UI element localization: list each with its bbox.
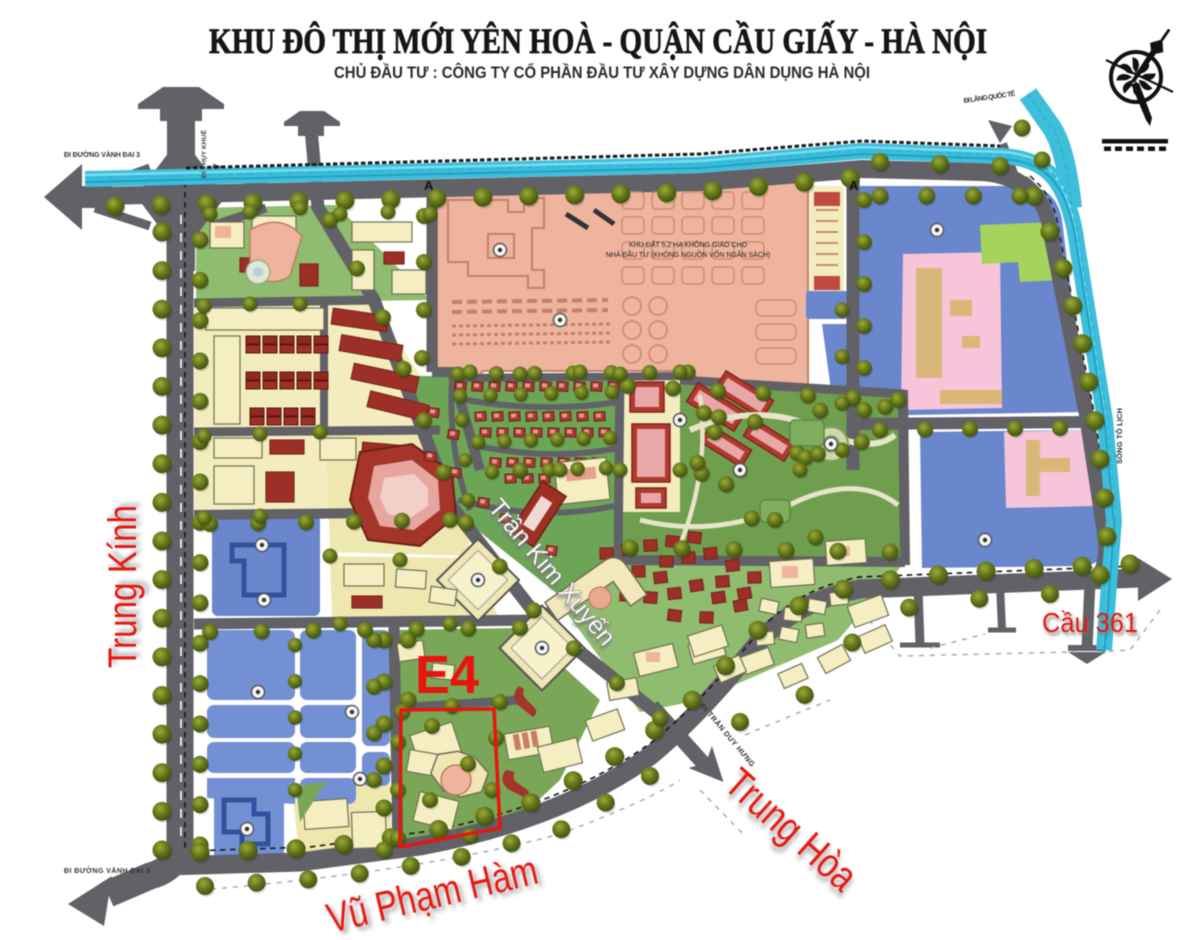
svg-text:Trung Kính: Trung Kính [101,505,145,668]
svg-text:CHỦ ĐẦU TƯ : CÔNG TY CỔ PHẦN Đ: CHỦ ĐẦU TƯ : CÔNG TY CỔ PHẦN ĐẦU TƯ XÂY … [334,63,870,82]
svg-text:KHU ĐÔ THỊ MỚI YÊN HOÀ - QUẬN: KHU ĐÔ THỊ MỚI YÊN HOÀ - QUẬN CẦU GIẤY -… [209,21,987,61]
svg-text:A: A [424,178,434,193]
svg-text:Cầu 361: Cầu 361 [1042,607,1138,638]
svg-text:ĐI ĐƯỜNG VÀNH ĐAI 3: ĐI ĐƯỜNG VÀNH ĐAI 3 [64,150,140,159]
svg-text:ĐI THỤY KHUÊ: ĐI THỤY KHUÊ [199,129,208,178]
svg-text:E4: E4 [415,645,479,705]
svg-text:ĐI ĐƯỜNG VÀNH ĐAI 3: ĐI ĐƯỜNG VÀNH ĐAI 3 [64,866,150,875]
svg-text:SÔNG TÔ LỊCH: SÔNG TÔ LỊCH [1115,408,1124,464]
svg-text:A: A [849,178,859,193]
